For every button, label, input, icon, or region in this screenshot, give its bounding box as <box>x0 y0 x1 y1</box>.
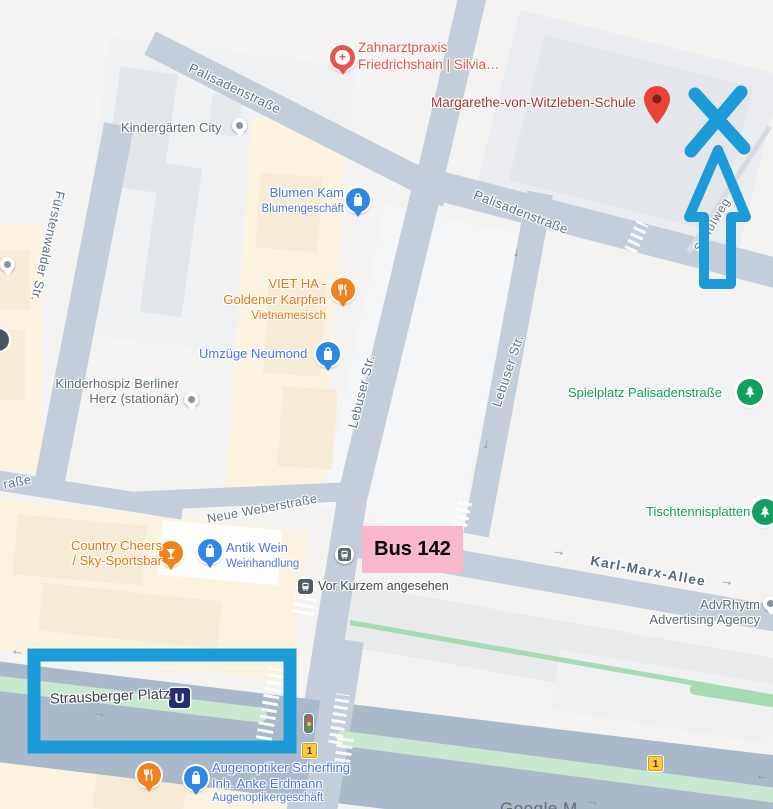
table-tennis-pin[interactable] <box>752 499 773 525</box>
poi-label-advrhytm[interactable]: AdvRhytm Advertising Agency <box>598 597 760 627</box>
oneway-arrow: → <box>551 544 567 556</box>
map-canvas[interactable]: → → → → → → → → Palisadenstraße Palisade… <box>0 0 773 809</box>
ubahn-logo[interactable]: U <box>169 688 190 708</box>
shopping-bag-icon <box>350 192 366 208</box>
generic-poi-pin[interactable] <box>0 257 15 272</box>
building <box>277 386 337 470</box>
oneway-arrow: → <box>754 774 769 786</box>
generic-poi-pin[interactable] <box>763 596 773 611</box>
poi-label-kindergaerten[interactable]: Kindergärten City <box>121 120 221 135</box>
generic-poi-pin[interactable] <box>232 118 247 133</box>
poi-label-antik-wein[interactable]: Antik Wein Weinhandlung <box>226 540 299 572</box>
oneway-arrow: → <box>483 437 495 453</box>
shopping-bag-icon <box>320 346 336 362</box>
poi-label-tischtennis[interactable]: Tischtennisplatten <box>646 504 750 519</box>
florist-pin[interactable] <box>346 188 370 212</box>
recently-viewed-bus-icon[interactable] <box>298 579 313 594</box>
route-1-badge: 1 <box>302 743 317 758</box>
poi-label-country-cheers[interactable]: Country Cheers / Sky-Sportsbar <box>38 538 162 568</box>
fork-knife-icon <box>141 767 157 783</box>
road-central-north <box>417 0 487 178</box>
health-cross-icon: + <box>335 50 350 65</box>
poi-label-umzuege[interactable]: Umzüge Neumond <box>199 346 307 361</box>
playground-pin[interactable] <box>737 379 763 405</box>
bus-icon <box>300 581 311 592</box>
poi-label-augenoptiker[interactable]: Augenoptiker Scherfling Inh. Anke Erdman… <box>212 760 350 807</box>
poi-label-viet-ha[interactable]: VIET HA - Goldener Karpfen Vietnamesisch <box>196 276 326 324</box>
shopping-bag-icon <box>188 770 204 786</box>
bus-142-highlight[interactable]: Bus 142 <box>362 526 463 573</box>
sportsbar-pin[interactable] <box>159 541 183 565</box>
dentist-pin[interactable]: + <box>330 45 355 70</box>
tree-icon <box>757 504 773 520</box>
restaurant-pin[interactable] <box>137 763 161 787</box>
generic-poi-pin[interactable] <box>184 392 199 407</box>
oneway-arrow: → <box>719 574 735 586</box>
oneway-arrow: → <box>92 706 108 719</box>
poi-label-blumen-kam[interactable]: Blumen Kam Blumengeschäft <box>244 185 344 217</box>
poi-label-kinderhospiz[interactable]: Kinderhospiz Berliner Herz (stationär) <box>44 376 179 406</box>
poi-label-spielplatz[interactable]: Spielplatz Palisadenstraße <box>568 385 722 400</box>
route-1-badge: 1 <box>648 756 663 771</box>
wine-shop-pin[interactable] <box>198 539 222 563</box>
crosswalk <box>292 595 317 616</box>
tree-icon <box>742 384 758 400</box>
oneway-arrow: → <box>513 245 525 261</box>
poi-label-schule[interactable]: Margarethe-von-Witzleben-Schule <box>431 95 636 110</box>
poi-label-dentist[interactable]: Zahnarztpraxis Friedrichshain | Silvia… <box>358 39 500 73</box>
shopping-bag-icon <box>202 543 218 559</box>
google-watermark: Google M <box>500 799 630 809</box>
cocktail-icon <box>163 545 179 561</box>
restaurant-pin[interactable] <box>331 278 355 302</box>
destination-pin-icon[interactable] <box>644 86 670 124</box>
traffic-light-icon <box>304 714 313 733</box>
oneway-arrow: → <box>9 649 25 662</box>
bus-stop-icon[interactable] <box>335 545 354 564</box>
bus-icon <box>339 549 350 560</box>
recently-viewed-label: Vor Kurzem angesehen <box>318 579 449 594</box>
movers-pin[interactable] <box>316 342 340 366</box>
optician-pin[interactable] <box>184 766 208 790</box>
fork-knife-icon <box>335 282 351 298</box>
